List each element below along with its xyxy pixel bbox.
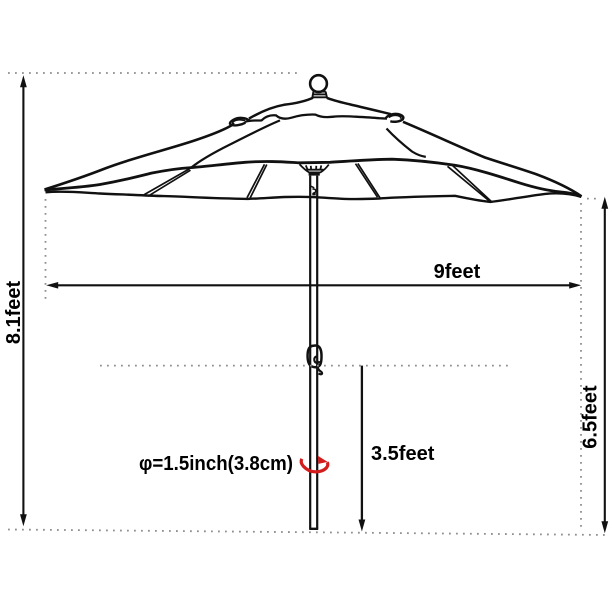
svg-text:8.1feet: 8.1feet [3, 280, 25, 344]
svg-text:6.5feet: 6.5feet [580, 385, 602, 449]
svg-text:3.5feet: 3.5feet [371, 443, 435, 465]
svg-text:φ=1.5inch(3.8cm): φ=1.5inch(3.8cm) [139, 453, 293, 475]
svg-text:9feet: 9feet [434, 261, 481, 283]
